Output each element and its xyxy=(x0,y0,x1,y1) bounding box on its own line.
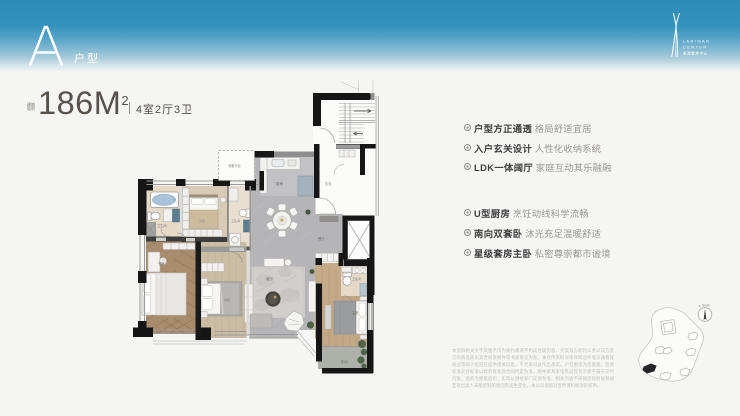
svg-text:▲ North: ▲ North xyxy=(698,304,710,308)
